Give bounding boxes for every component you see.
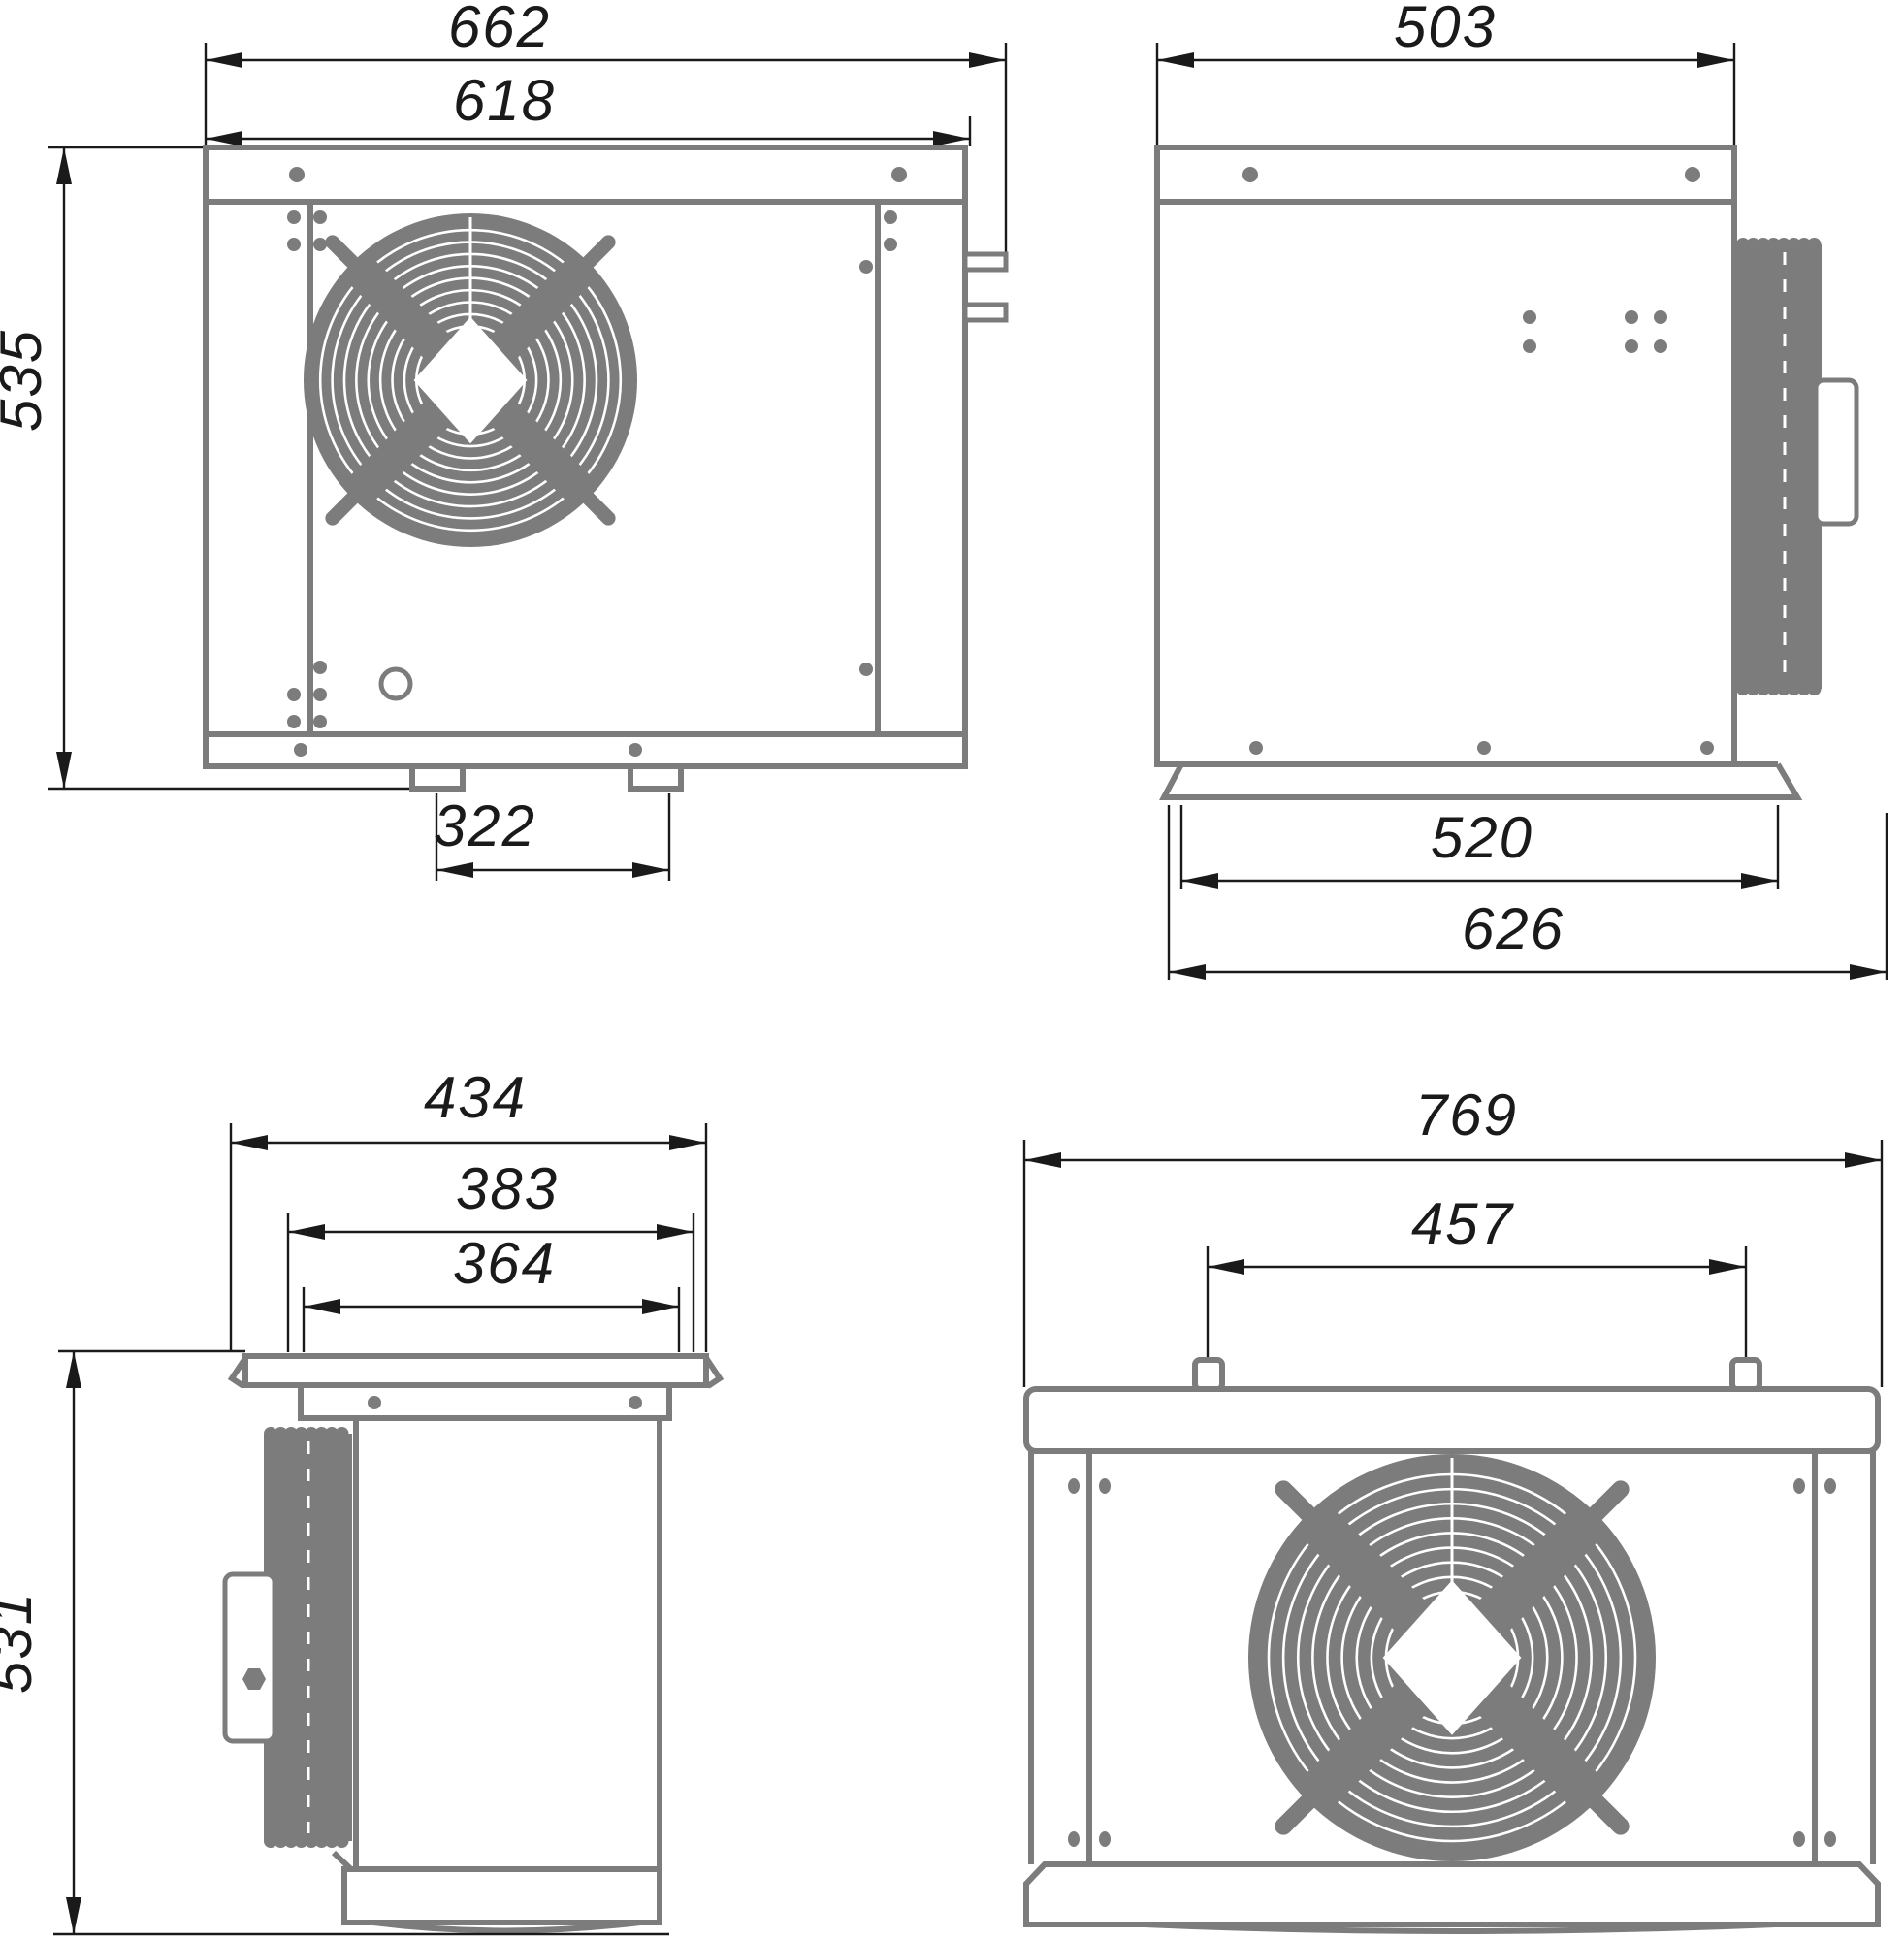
dim-label-769: 769 (1415, 1083, 1518, 1148)
mounting-bracket-side (1816, 380, 1856, 524)
dim-label-618: 618 (453, 68, 556, 133)
dim-side-base-width: 520 (1181, 805, 1778, 889)
mounting-bracket-left (225, 1574, 274, 1741)
dim-label-434: 434 (424, 1065, 527, 1130)
hanger-lug-left (1195, 1360, 1222, 1389)
dim-back-hanger-spacing: 457 (1208, 1191, 1746, 1358)
condenser-coil-left (225, 1427, 352, 1848)
dim-front-feet-spacing: 322 (434, 793, 669, 881)
left-top-strip (301, 1385, 669, 1418)
foot-left (412, 766, 463, 789)
technical-drawing: 662 618 535 322 (0, 0, 1904, 1940)
dim-left-body-depth: 364 (304, 1231, 679, 1352)
left-body-outline (356, 1418, 660, 1869)
fan-grille-back (1248, 1454, 1656, 1861)
drawing-stage: 662 618 535 322 (0, 0, 1904, 1940)
lid-plate (245, 1356, 706, 1385)
dim-label-364: 364 (453, 1231, 556, 1296)
left-side-view: 434 383 364 531 (0, 1065, 720, 1934)
fan-grille (304, 213, 637, 547)
dim-label-531: 531 (0, 1591, 44, 1694)
dim-label-322: 322 (434, 793, 536, 858)
dim-label-535: 535 (0, 329, 53, 432)
dim-label-662: 662 (448, 0, 551, 59)
dim-label-503: 503 (1394, 0, 1497, 59)
dim-label-383: 383 (456, 1156, 559, 1221)
dim-front-body-width: 618 (206, 68, 970, 146)
dim-label-626: 626 (1462, 896, 1565, 961)
side-view: 503 520 626 (1157, 0, 1887, 980)
front-view: 662 618 535 322 (0, 0, 1006, 881)
back-view: 769 457 (1024, 1083, 1882, 1931)
pipe-stub-upper (965, 254, 1006, 270)
base-pan-back-view (1026, 1864, 1878, 1924)
base-pan-left-view (344, 1869, 660, 1923)
dim-label-520: 520 (1431, 805, 1533, 870)
side-panel-outline (1157, 147, 1734, 764)
base-pan-side (1164, 764, 1797, 797)
hanger-lug-right (1732, 1360, 1759, 1389)
foot-right (630, 766, 681, 789)
dim-label-457: 457 (1411, 1191, 1515, 1256)
drain-hole (381, 669, 410, 698)
pipe-stub-lower (965, 305, 1006, 320)
back-top-rail (1026, 1389, 1878, 1451)
dim-side-depth: 503 (1157, 0, 1734, 147)
dim-left-height: 531 (0, 1351, 245, 1934)
condenser-coil-side (1736, 238, 1856, 695)
